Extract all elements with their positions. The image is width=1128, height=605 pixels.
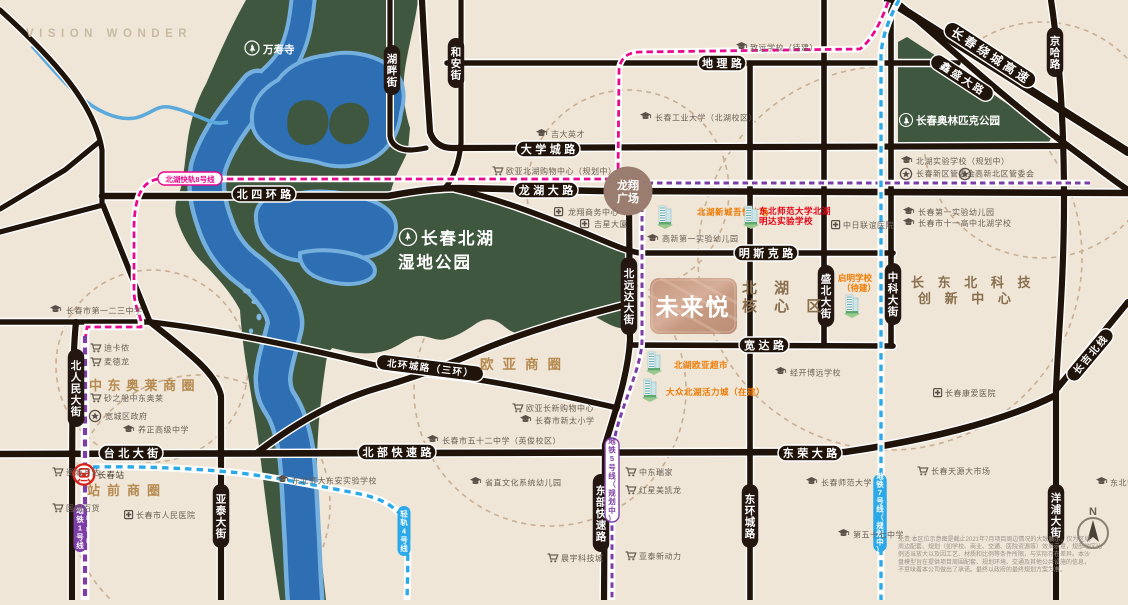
svg-text:免责:本区位示意图是截止2021年7月项目周边情况的大致展示: 免责:本区位示意图是截止2021年7月项目周边情况的大致展示，仅为区域: [898, 535, 1090, 543]
svg-text:北湖快轨8号线: 北湖快轨8号线: [165, 174, 215, 184]
svg-text:明达实验学校: 明达实验学校: [759, 216, 813, 226]
svg-text:长春市人民医院: 长春市人民医院: [136, 510, 196, 520]
svg-text:亚泰新动力: 亚泰新动力: [639, 551, 682, 561]
svg-text:台北大街: 台北大街: [104, 446, 162, 460]
svg-text:晨宇科技城: 晨宇科技城: [561, 553, 604, 563]
svg-text:创 新 中 心: 创 新 中 心: [917, 291, 1016, 306]
svg-text:湖畔街: 湖畔街: [386, 52, 398, 88]
svg-text:湿地公园: 湿地公园: [398, 252, 472, 272]
svg-text:周边配套、规划（如学校、商业、交通、医院资源等）效果示意，规: 周边配套、规划（如学校、商业、交通、医院资源等）效果示意，规部地区比: [898, 543, 1102, 551]
svg-text:北人民大街: 北人民大街: [70, 359, 82, 418]
svg-text:欧亚长新购物中心: 欧亚长新购物中心: [526, 403, 594, 413]
svg-text:东荣大路: 东荣大路: [783, 446, 841, 460]
svg-text:北 湖: 北 湖: [742, 280, 796, 297]
svg-text:北部快速路: 北部快速路: [363, 445, 436, 459]
svg-text:第五十七中学: 第五十七中学: [853, 530, 904, 540]
svg-text:中东瑞家: 中东瑞家: [639, 467, 673, 477]
svg-text:红星美凯龙: 红星美凯龙: [639, 485, 682, 495]
svg-text:长春市五十二中学（英俊校区）: 长春市五十二中学（英俊校区）: [442, 436, 561, 446]
svg-text:吉星大厦: 吉星大厦: [594, 219, 628, 229]
svg-text:未来悦: 未来悦: [656, 294, 731, 320]
svg-text:北远达大街: 北远达大街: [623, 267, 635, 326]
svg-text:明斯克路: 明斯克路: [739, 246, 797, 260]
svg-text:大学城路: 大学城路: [521, 142, 579, 156]
svg-text:中日联谊医院: 中日联谊医院: [843, 220, 894, 230]
svg-text:经开博远学校: 经开博远学校: [790, 368, 841, 378]
svg-text:宽城区政府: 宽城区政府: [105, 411, 148, 421]
svg-text:龙翔: 龙翔: [616, 178, 639, 192]
svg-text:迪卡侬: 迪卡侬: [104, 343, 130, 353]
svg-text:龙翔商务中心: 龙翔商务中心: [568, 207, 619, 217]
svg-text:地铁5号线（规划中）: 地铁5号线（规划中）: [608, 436, 616, 523]
svg-text:盘模型旨在提供项目周围配套、规划环境、交通及其他公共设施的信: 盘模型旨在提供项目周围配套、规划环境、交通及其他公共设施的信息，: [898, 558, 1090, 566]
svg-text:VISION WONDER: VISION WONDER: [26, 28, 192, 40]
svg-text:核 心 区: 核 心 区: [742, 297, 828, 315]
svg-text:中东奥莱商圈: 中东奥莱商圈: [89, 378, 200, 393]
svg-text:北湖实验学校（规划中）: 北湖实验学校（规划中）: [916, 156, 1010, 166]
svg-text:东北师大东安实验学校: 东北师大东安实验学校: [292, 476, 377, 486]
svg-text:长春康爱医院: 长春康爱医院: [945, 388, 996, 398]
svg-text:例适当放大以及因工艺、材质和比例等条件所限，与实际存在差异。: 例适当放大以及因工艺、材质和比例等条件所限，与实际存在差异。本沙: [898, 550, 1090, 558]
svg-text:高新北区管委会: 高新北区管委会: [975, 169, 1035, 179]
svg-text:吉大英才: 吉大英才: [551, 129, 585, 139]
svg-text:北湖欧亚超市: 北湖欧亚超市: [674, 360, 728, 370]
svg-text:国商百货: 国商百货: [66, 503, 100, 513]
svg-text:京哈路: 京哈路: [1050, 34, 1061, 70]
svg-text:大众北湖活力城（在建）: 大众北湖活力城（在建）: [666, 387, 765, 397]
svg-text:长春师范大学: 长春师范大学: [821, 478, 872, 488]
svg-text:长春工业大学（北湖校区）: 长春工业大学（北湖校区）: [655, 113, 757, 123]
svg-text:砂之船中东奥莱: 砂之船中东奥莱: [104, 393, 164, 403]
svg-text:长 东 北 科 技: 长 东 北 科 技: [911, 275, 1035, 290]
svg-text:洋浦大街: 洋浦大街: [1050, 492, 1062, 540]
svg-text:不意味着本公司做出了承诺。最终以政府的最终规划方案为准。: 不意味着本公司做出了承诺。最终以政府的最终规划方案为准。: [898, 565, 1066, 573]
svg-text:长春第一实验幼儿园: 长春第一实验幼儿园: [918, 207, 995, 217]
svg-text:中科大街: 中科大街: [887, 271, 899, 319]
svg-text:致远学校（待建）: 致远学校（待建）: [750, 43, 818, 53]
svg-text:长春奥林匹克公园: 长春奥林匹克公园: [916, 114, 1000, 127]
svg-text:（待建）: （待建）: [842, 283, 876, 293]
svg-text:长春市第一二三中学: 长春市第一二三中学: [66, 306, 143, 316]
svg-text:地理路: 地理路: [702, 56, 746, 70]
svg-text:和安街: 和安街: [450, 45, 462, 81]
svg-text:长春市十一高中北湖学校: 长春市十一高中北湖学校: [918, 218, 1012, 228]
svg-text:北四环路: 北四环路: [237, 187, 295, 201]
svg-text:欧亚商圈: 欧亚商圈: [480, 356, 570, 372]
svg-text:麦德龙: 麦德龙: [104, 357, 130, 367]
svg-text:欧亚北湖购物中心（规划中）: 欧亚北湖购物中心（规划中）: [506, 166, 617, 176]
svg-text:广场: 广场: [617, 191, 639, 205]
svg-text:地铁7号线（规划中）: 地铁7号线（规划中）: [876, 471, 884, 555]
svg-text:亚泰大街: 亚泰大街: [215, 494, 227, 541]
svg-text:省直文化系统幼儿园: 省直文化系统幼儿园: [485, 478, 562, 488]
svg-text:长春站: 长春站: [98, 470, 125, 480]
svg-text:长春市新太小学: 长春市新太小学: [535, 416, 595, 426]
svg-text:启明学校: 启明学校: [838, 273, 873, 283]
svg-text:养正高级中学: 养正高级中学: [138, 425, 189, 435]
svg-text:龙湖大路: 龙湖大路: [518, 183, 577, 197]
svg-text:高新第一实验幼儿园: 高新第一实验幼儿园: [662, 234, 739, 244]
svg-text:万寿寺: 万寿寺: [262, 43, 295, 56]
svg-text:东环城路: 东环城路: [745, 493, 756, 541]
svg-text:东北师大实验学校: 东北师大实验学校: [1110, 478, 1128, 488]
svg-text:长春北湖: 长春北湖: [421, 228, 495, 248]
svg-text:贵城万达: 贵城万达: [66, 467, 100, 477]
svg-text:宽达路: 宽达路: [743, 338, 788, 352]
svg-text:东北师范大学北湖: 东北师范大学北湖: [759, 206, 831, 216]
svg-text:站前商圈: 站前商圈: [87, 483, 167, 498]
svg-text:长春天源大市场: 长春天源大市场: [931, 466, 991, 476]
svg-text:N: N: [1089, 506, 1097, 518]
